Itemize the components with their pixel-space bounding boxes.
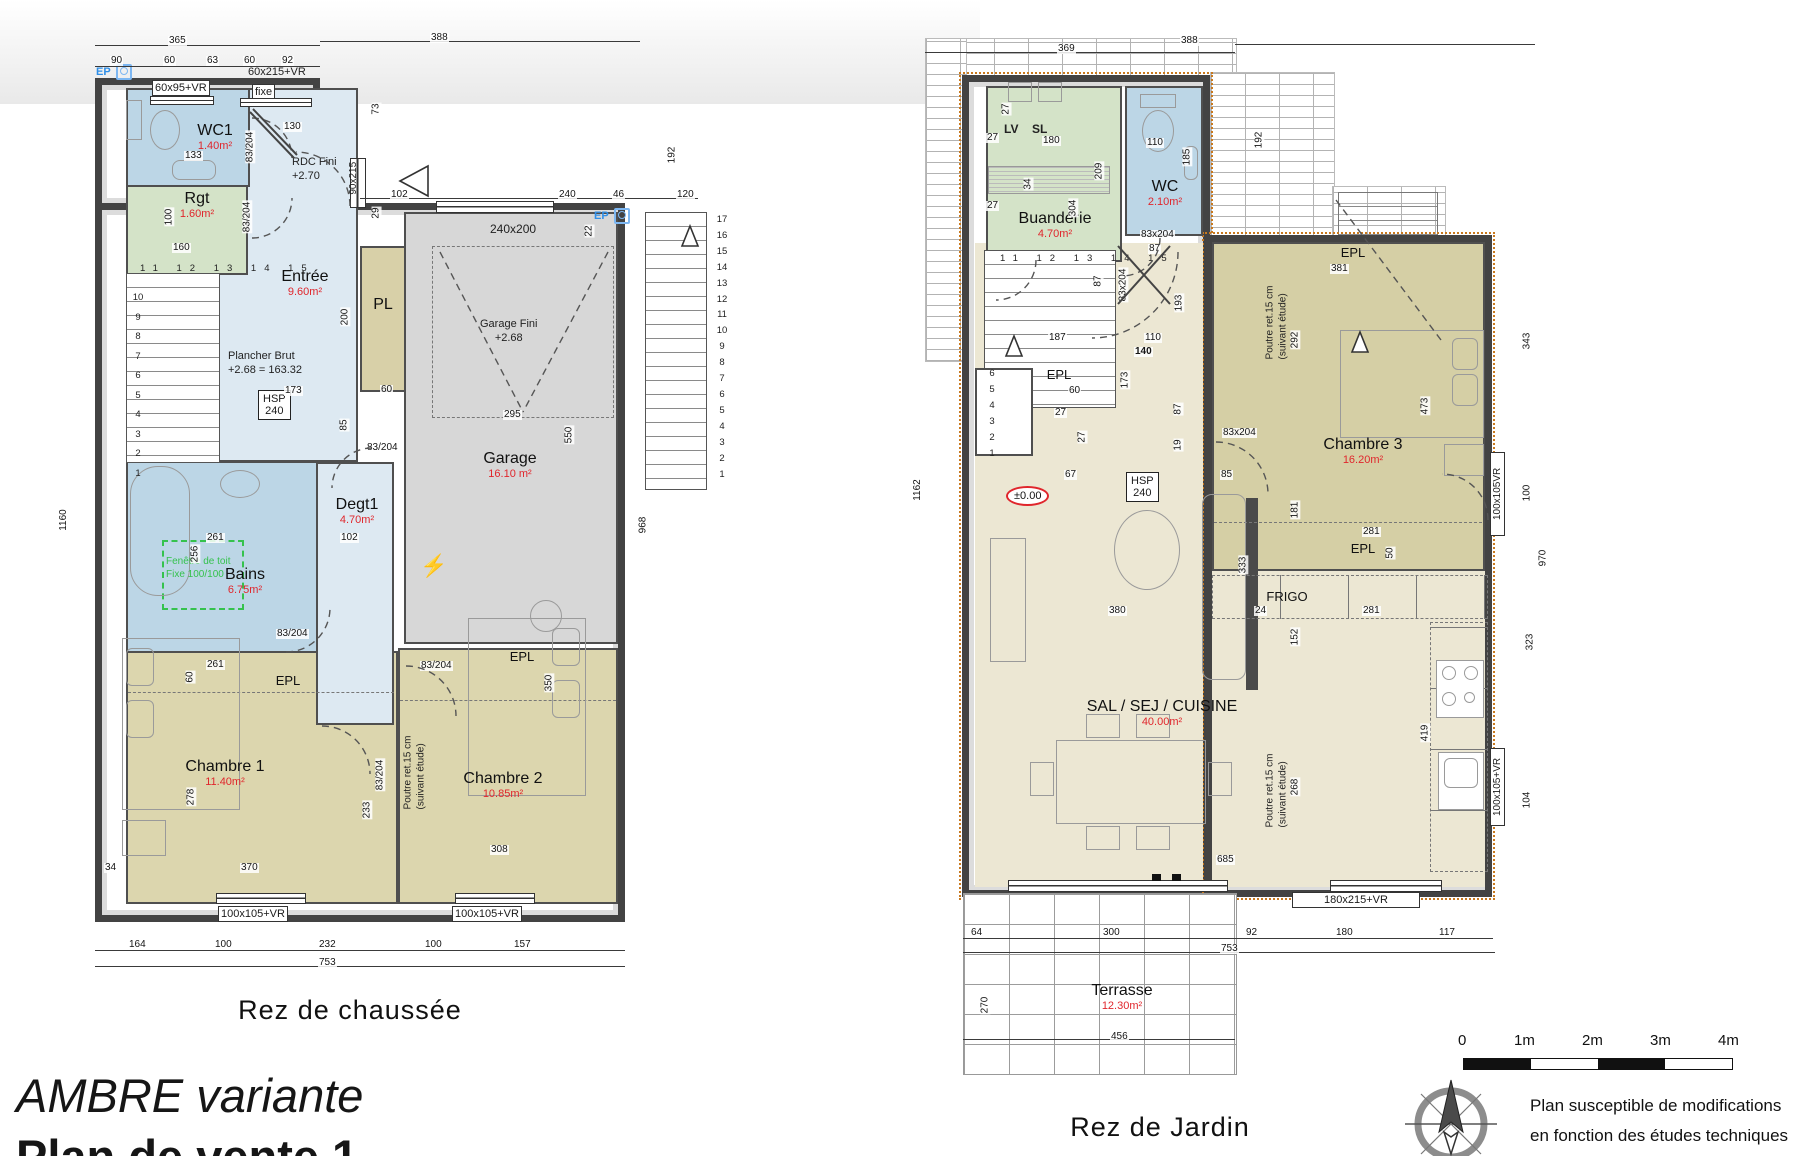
washbasin	[126, 100, 142, 140]
dim-label: 27	[986, 133, 999, 143]
door-size-tag: 83/204	[375, 759, 385, 792]
window	[455, 893, 535, 904]
cooktop-burner	[1442, 692, 1456, 706]
kitchen-sink-bowl	[1444, 758, 1478, 788]
dim-label: 60	[1068, 386, 1081, 396]
dim-label: 60	[186, 670, 196, 683]
dim-label: 1160	[59, 508, 69, 532]
door-size-tag: 83/204	[242, 201, 252, 234]
dim-label: 85	[1220, 470, 1233, 480]
dim-label: 304	[1068, 199, 1078, 218]
level-note: Plancher Brut +2.68 = 163.32	[228, 350, 302, 378]
exterior-staircase	[645, 212, 707, 490]
cooktop-burner	[1464, 692, 1475, 703]
dim-label: 1162	[913, 478, 923, 502]
level-note: RDC Fini +2.70	[292, 156, 337, 184]
dim-label: 308	[490, 845, 509, 855]
dim-label: 180	[1335, 928, 1354, 938]
dim-label: 60	[163, 56, 176, 66]
dim-label: 100	[164, 208, 174, 227]
electric-panel-icon: ⚡	[420, 552, 447, 580]
dim-label: 87	[1094, 274, 1104, 287]
dim-label: 173	[1120, 371, 1130, 390]
hsp-tag: HSP 240	[1126, 472, 1159, 502]
room-label-epl: EPL	[1036, 368, 1082, 383]
nightstand	[122, 820, 166, 856]
dim-label: 34	[104, 863, 117, 873]
dim-label: 157	[513, 940, 532, 950]
dim-label: 343	[1522, 332, 1532, 351]
dim-label: 120	[676, 190, 695, 200]
scale-tick-label: 3m	[1650, 1032, 1671, 1049]
ep-icon	[614, 208, 630, 224]
dim-label: 102	[390, 190, 409, 200]
washer-label: LV	[1004, 122, 1018, 137]
dim-label: 130	[283, 122, 302, 132]
dim-label: 24	[1254, 606, 1267, 616]
dim-label: 29	[372, 206, 382, 219]
door-handle	[1152, 874, 1161, 881]
dim-label: 164	[128, 940, 147, 950]
stair-step-numbers: 6 5 4 3 2 1	[984, 366, 1000, 462]
dim-label: 63	[206, 56, 219, 66]
pillow	[1452, 374, 1478, 406]
armchair	[1114, 510, 1180, 590]
dim-label: 140	[1134, 347, 1153, 357]
room-label-terrasse: Terrasse12.30m²	[1062, 982, 1182, 1013]
garage-door-label: 240x200	[490, 222, 536, 237]
dim-line	[95, 950, 625, 951]
pillow	[126, 648, 154, 686]
shelf	[988, 166, 1110, 194]
dim-label: 102	[340, 533, 359, 543]
dim-label: 350	[544, 674, 554, 693]
dim-label: 323	[1525, 633, 1535, 652]
dim-label: 133	[184, 151, 203, 161]
dim-label: 473	[1420, 397, 1430, 416]
chair	[1086, 826, 1120, 850]
dim-label: 388	[430, 33, 449, 43]
dim-label: 295	[503, 410, 522, 420]
sofa	[1202, 494, 1246, 680]
window	[216, 893, 306, 904]
dim-label: 100	[1522, 484, 1532, 503]
dim-line	[360, 198, 698, 199]
window-label: 100x105+VR	[218, 906, 288, 922]
washing-machine	[1008, 82, 1032, 102]
window	[1330, 880, 1442, 892]
room-label-buanderie: Buanderie4.70m²	[990, 210, 1120, 241]
room-label-wc1: WC11.40m²	[170, 122, 260, 153]
door-label: 90x215	[348, 162, 361, 195]
dim-line	[1235, 44, 1535, 45]
paving	[1210, 72, 1335, 240]
cooktop-burner	[1464, 666, 1478, 680]
room-label-chambre3: Chambre 316.20m²	[1288, 436, 1438, 467]
dim-label: 92	[281, 56, 294, 66]
dim-label: 380	[1108, 606, 1127, 616]
room-label-garage: Garage16.10 m²	[450, 450, 570, 481]
dim-label: 73	[372, 102, 382, 115]
dim-label: 85	[340, 418, 350, 431]
dim-line	[95, 66, 320, 67]
dim-label: 388	[1180, 36, 1199, 46]
dim-label: 185	[1182, 148, 1192, 167]
dim-label: 100	[214, 940, 233, 950]
beam-note: Poutre ret.15 cm (suivant étude)	[402, 736, 427, 810]
dim-label: 419	[1420, 724, 1430, 743]
beam-note: Poutre ret.15 cm (suivant étude)	[1264, 286, 1289, 360]
dining-table	[1056, 740, 1206, 824]
window-label: 60x215+VR	[248, 66, 306, 80]
door-size-tag: 83/204	[366, 443, 399, 453]
door-handle	[1172, 874, 1181, 881]
stair-step-numbers: 11 12 13 14 15	[1000, 254, 1175, 264]
ep-label: EP	[96, 66, 111, 78]
room-label-frigo: FRIGO	[1252, 590, 1322, 605]
nightstand	[1444, 444, 1484, 476]
dim-label: 753	[1220, 944, 1239, 954]
door-size-tag: 83x204	[1118, 268, 1128, 303]
dim-label: 278	[186, 788, 196, 807]
cooktop-burner	[1442, 666, 1456, 680]
dim-line	[925, 52, 1235, 53]
dim-label: 27	[1078, 430, 1088, 443]
dim-label: 110	[1146, 138, 1164, 148]
dim-label: 200	[340, 308, 350, 327]
dim-label: 270	[980, 996, 990, 1015]
dim-label: 110	[1144, 333, 1162, 343]
pillow	[1452, 338, 1478, 370]
dim-label: 365	[168, 36, 187, 46]
project-title: AMBRE variante	[16, 1068, 363, 1123]
plan1-caption: Rez de chaussée	[200, 995, 500, 1026]
scale-bar	[1463, 1058, 1733, 1070]
dim-line	[963, 1039, 1235, 1040]
room-pl	[360, 246, 406, 392]
dim-label: 233	[362, 801, 372, 820]
dim-label: 173	[284, 386, 303, 396]
dim-line	[963, 938, 1493, 939]
dim-label: 34	[1024, 177, 1034, 190]
dim-label: 87	[1174, 402, 1184, 415]
pillow	[552, 680, 580, 718]
project-subtitle-clipped: Plan de vente 1	[16, 1133, 476, 1156]
dim-label: 970	[1538, 549, 1548, 568]
dim-label: 187	[1048, 333, 1067, 343]
dim-label: 333	[1238, 556, 1248, 575]
dim-label: 292	[1290, 331, 1300, 350]
dim-label: 232	[318, 940, 337, 950]
dim-label: 281	[1362, 527, 1381, 537]
dim-label: 181	[1290, 501, 1300, 520]
plan2-caption: Rez de Jardin	[1040, 1112, 1280, 1143]
dim-label: 27	[986, 201, 999, 211]
door-size-tag: 83/204	[420, 661, 453, 671]
dim-label: 87	[1148, 244, 1161, 254]
dim-line	[95, 966, 625, 967]
dim-label: 261	[206, 533, 225, 543]
pillow	[126, 700, 154, 738]
dim-label: 180	[1042, 136, 1061, 146]
chair	[1030, 762, 1054, 796]
window-label: 60x95+VR	[152, 80, 210, 96]
dim-label: 753	[318, 958, 337, 968]
dim-label: 369	[1057, 44, 1076, 54]
dim-label: 90	[110, 56, 123, 66]
pillow	[552, 628, 580, 666]
dim-label: 160	[172, 243, 191, 253]
room-label-degt1: Degt14.70m²	[310, 496, 404, 527]
dim-label: 152	[1290, 628, 1300, 647]
scale-tick-label: 0	[1458, 1032, 1466, 1049]
floor-plan-sheet: ⚡ 17 16 15 14 13 12 11 10 9 8 7 6 5 4 3 …	[0, 0, 1794, 1156]
dim-label: 27	[1054, 408, 1067, 418]
room-label-wc: WC2.10m²	[1132, 178, 1198, 209]
window-label: 100x105VR	[1490, 452, 1505, 536]
dim-label: 256	[190, 545, 200, 564]
epl-dashed-line	[1214, 522, 1482, 523]
chair	[1136, 826, 1170, 850]
dim-label: 261	[206, 660, 225, 670]
dim-label: 209	[1094, 162, 1104, 181]
dim-label: 240	[558, 190, 577, 200]
dim-label: 117	[1438, 928, 1456, 938]
dim-label: 19	[1174, 438, 1184, 451]
disclaimer-line2: en fonction des études techniques	[1530, 1126, 1788, 1146]
window	[240, 98, 312, 107]
dim-label: 193	[1174, 294, 1184, 313]
room-label-epl: EPL	[492, 650, 552, 665]
window-label: 100x105+VR	[1490, 748, 1505, 826]
room-label-sejour: SAL / SEJ / CUISINE40.00m²	[1052, 698, 1272, 729]
dryer	[1038, 82, 1062, 102]
level-note: Garage Fini +2.68	[480, 318, 537, 346]
dim-label: 281	[1362, 606, 1381, 616]
room-label-entree: Entrée9.60m²	[250, 268, 360, 299]
dim-label: 67	[1064, 470, 1077, 480]
disclaimer-line1: Plan susceptible de modifications	[1530, 1096, 1781, 1116]
door-size-tag: 83/204	[276, 629, 309, 639]
dim-label: 192	[667, 146, 677, 165]
sideboard	[990, 538, 1026, 662]
dim-label: 550	[564, 426, 574, 445]
dim-label: 60	[243, 56, 256, 66]
compass-icon	[1405, 1080, 1497, 1156]
beam-note: Poutre ret.15 cm (suivant étude)	[1264, 754, 1289, 828]
window	[150, 96, 214, 105]
door-size-tag: 83x204	[1140, 230, 1175, 240]
dim-label: 968	[638, 516, 648, 535]
dim-line	[95, 45, 320, 46]
dim-label: 685	[1216, 855, 1235, 865]
dim-label: 46	[612, 190, 625, 200]
window	[1008, 880, 1228, 892]
dim-label: 300	[1102, 928, 1121, 938]
ep-label: EP	[594, 210, 609, 222]
stair-step-numbers: 10 9 8 7 6 5 4 3 2 1	[130, 288, 146, 483]
dim-label: 100	[424, 940, 443, 950]
window-label: 100x105+VR	[452, 906, 522, 922]
chair	[1208, 762, 1232, 796]
dim-label: 27	[1002, 102, 1012, 115]
dim-label: 456	[1110, 1032, 1129, 1042]
room-label-pl: PL	[362, 296, 404, 314]
dim-label: 50	[1386, 546, 1396, 559]
window-label: 180x215+VR	[1292, 892, 1420, 908]
stair-step-numbers: 17 16 15 14 13 12 11 10 9 8 7 6 5 4 3 2 …	[712, 212, 732, 482]
garage-door-opening	[436, 201, 554, 213]
dim-label: 381	[1330, 264, 1349, 274]
scale-tick-label: 2m	[1582, 1032, 1603, 1049]
washbasin	[172, 160, 216, 180]
dim-label: 370	[240, 863, 259, 873]
room-label-chambre2: Chambre 210.85m²	[428, 770, 578, 801]
dim-label: 268	[1290, 778, 1300, 797]
door-size-tag: 83x204	[1222, 428, 1257, 438]
dim-label: 60	[380, 385, 393, 395]
sink	[220, 470, 260, 498]
scale-tick-label: 4m	[1718, 1032, 1739, 1049]
dim-line	[320, 41, 640, 42]
room-label-epl: EPL	[1330, 246, 1376, 261]
dim-label: 22	[585, 224, 595, 237]
room-label-chambre1: Chambre 111.40m²	[150, 758, 300, 789]
dim-label: 104	[1522, 791, 1532, 810]
dim-label: 92	[1245, 928, 1258, 938]
dim-label: 64	[970, 928, 983, 938]
room-label-epl: EPL	[258, 674, 318, 689]
room-label-epl: EPL	[1340, 542, 1386, 557]
toilet-tank	[1140, 94, 1176, 108]
paving	[925, 38, 967, 362]
water-heater	[530, 600, 562, 632]
scale-tick-label: 1m	[1514, 1032, 1535, 1049]
dim-label: 192	[1254, 131, 1264, 150]
